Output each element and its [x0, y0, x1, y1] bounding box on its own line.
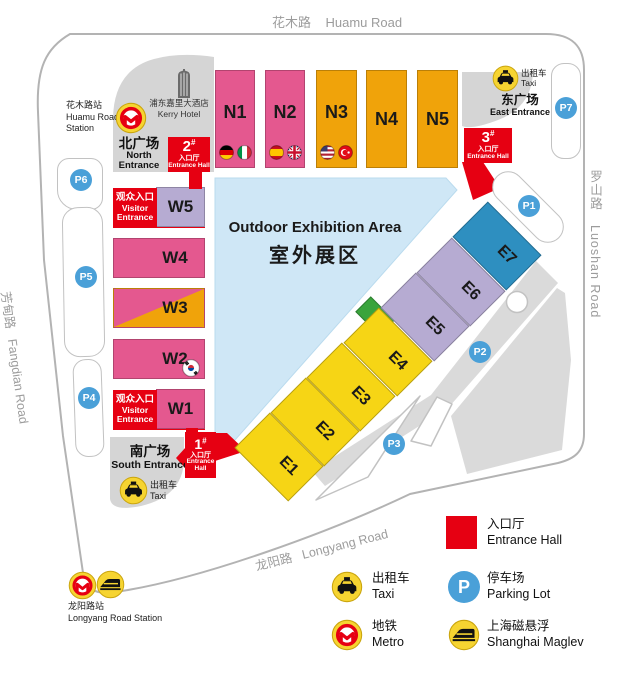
huamu-road-cn: 花木路: [272, 15, 311, 30]
huamu-road-label: 花木路 Huamu Road: [272, 12, 402, 31]
hall-n1-flags: [216, 145, 254, 160]
taxi-icon: [331, 571, 363, 603]
hall-n5-label: N5: [426, 109, 449, 130]
parking-p5: P5: [75, 266, 97, 288]
hall-n1-label: N1: [223, 102, 246, 123]
legend-metro-cn: 地铁: [372, 619, 404, 635]
hall-w1: W1: [156, 389, 205, 429]
north-entrance-cn: 北广场: [106, 137, 172, 151]
fangdian-road-cn: 芳甸路: [0, 291, 17, 330]
longyang-station-en: Longyang Road Station: [68, 613, 162, 625]
entrance-hall-3-num: 3: [482, 129, 490, 146]
legend-entrance-hall-cn: 入口厅: [487, 517, 562, 533]
east-entrance-cn: 东广场: [479, 94, 561, 108]
taxi-en: Taxi: [150, 491, 177, 502]
legend-taxi-cn: 出租车: [372, 571, 410, 587]
hall-e6-label: E6: [457, 278, 484, 305]
flag-spain-icon: [269, 145, 284, 160]
hall-e5-label: E5: [421, 313, 448, 340]
hall-n3-label: N3: [325, 102, 348, 123]
south-entrance-label: 南广场 South Entrance: [105, 445, 195, 471]
metro-icon: [331, 619, 363, 651]
hall-n4-label: N4: [375, 109, 398, 130]
south-entrance-cn: 南广场: [105, 445, 195, 460]
metro-icon: [68, 571, 97, 600]
legend-entrance-hall-label: 入口厅 Entrance Hall: [487, 517, 562, 548]
hall-n4: N4: [366, 70, 407, 168]
hall-n3-flags: [317, 145, 356, 160]
parking-p1: P1: [518, 195, 540, 217]
taxi-icon: [492, 65, 519, 92]
hall-n5: N5: [417, 70, 458, 168]
hall-w5-label: W5: [168, 197, 194, 217]
huamu-station-label: 花木路站 Huamu Road Station: [66, 100, 119, 135]
hall-w4: W4: [113, 238, 205, 278]
hall-n2-flags: [266, 145, 304, 160]
north-entrance-label: 北广场 North Entrance: [106, 137, 172, 171]
longyang-station-cn: 龙阳路站: [68, 601, 162, 613]
parking-p3: P3: [383, 433, 405, 455]
legend-entrance-hall-en: Entrance Hall: [487, 533, 562, 549]
visitor-entrance-w5: 观众入口 Visitor Entrance: [113, 188, 157, 228]
taxi-en: Taxi: [521, 78, 547, 88]
entrance-hall-2-en: Entrance Hall: [168, 163, 210, 170]
entrance-hall-2-stem: [189, 171, 202, 189]
hall-n1: N1: [215, 70, 255, 168]
entrance-hall-1-num: 1: [194, 436, 202, 452]
hall-w5: W5: [156, 187, 205, 227]
hall-e4-label: E4: [384, 348, 411, 375]
hall-e3-label: E3: [347, 383, 374, 410]
taxi-cn: 出租车: [521, 68, 547, 78]
metro-icon: [115, 102, 147, 134]
entrance-hall-1-en2: Hall: [195, 466, 207, 473]
huamu-station-en2: Station: [66, 123, 119, 135]
legend-parking-cn: 停车场: [487, 571, 550, 587]
parking-p2: P2: [469, 341, 491, 363]
entrance-hall-1: 1# 入口厅 Entrance Hall: [185, 432, 216, 478]
flag-italy-icon: [237, 145, 252, 160]
legend-maglev-en: Shanghai Maglev: [487, 635, 584, 651]
legend-parking-label: 停车场 Parking Lot: [487, 571, 550, 602]
huamu-station-en1: Huamu Road: [66, 112, 119, 124]
legend-parking-en: Parking Lot: [487, 587, 550, 603]
legend-maglev-cn: 上海磁悬浮: [487, 619, 584, 635]
flag-germany-icon: [219, 145, 234, 160]
north-entrance-en2: Entrance: [106, 161, 172, 171]
flag-korea-icon: [182, 359, 200, 377]
entrance-hall-2-num: 2: [183, 138, 191, 155]
outdoor-area-title-en: Outdoor Exhibition Area: [215, 219, 415, 236]
flag-uk-icon: [287, 145, 302, 160]
hotel-label: 浦东嘉里大酒店 Kerry Hotel: [140, 98, 218, 119]
taxi-icon: [119, 476, 148, 505]
visitor-entrance-en2: Entrance: [117, 213, 153, 223]
road-junction-circle: [507, 292, 528, 313]
hall-e1-label: E1: [275, 453, 302, 480]
outdoor-area-title-cn: 室外展区: [215, 239, 415, 268]
hash-mark: #: [490, 129, 494, 138]
hall-n2: N2: [265, 70, 305, 168]
taxi-cn: 出租车: [150, 480, 177, 491]
legend-maglev-label: 上海磁悬浮 Shanghai Maglev: [487, 619, 584, 650]
hall-w3-label: W3: [114, 298, 204, 318]
maglev-icon: [448, 619, 480, 651]
east-entrance-en: East Entrance: [479, 108, 561, 118]
hall-w2: W2: [113, 339, 205, 379]
hall-e2-label: E2: [311, 418, 338, 445]
parking-p6: P6: [70, 169, 92, 191]
hash-mark: #: [191, 138, 195, 147]
hall-n3: N3: [316, 70, 357, 168]
longyang-station-label: 龙阳路站 Longyang Road Station: [68, 601, 162, 624]
hall-w4-label: W4: [114, 248, 204, 268]
south-taxi-label: 出租车 Taxi: [150, 480, 177, 502]
huamu-station-cn: 花木路站: [66, 100, 119, 112]
visitor-entrance-w1: 观众入口 Visitor Entrance: [113, 390, 157, 430]
huamu-road-en: Huamu Road: [325, 15, 402, 30]
maglev-icon: [96, 570, 125, 599]
luoshan-road-en: Luoshan Road: [588, 225, 602, 318]
legend-entrance-hall-swatch: [446, 516, 477, 549]
hall-w1-label: W1: [168, 399, 194, 419]
hotel-building-icon: [174, 69, 194, 98]
east-taxi-label: 出租车 Taxi: [521, 68, 547, 88]
hotel-name-en: Kerry Hotel: [140, 109, 218, 120]
east-entrance-label: 东广场 East Entrance: [479, 94, 561, 118]
visitor-entrance-en2: Entrance: [117, 415, 153, 425]
flag-usa-icon: [320, 145, 335, 160]
entrance-hall-3: 3# 入口厅 Entrance Hall: [464, 128, 512, 163]
entrance-hall-2: 2# 入口厅 Entrance Hall: [168, 137, 210, 172]
hall-e7-label: E7: [493, 242, 520, 269]
luoshan-road-label: 罗山路 Luoshan Road: [586, 170, 605, 318]
legend-taxi-en: Taxi: [372, 587, 410, 603]
hotel-name-cn: 浦东嘉里大酒店: [140, 98, 218, 109]
hall-n2-label: N2: [273, 102, 296, 123]
parking-p4: P4: [78, 387, 100, 409]
luoshan-road-cn: 罗山路: [588, 170, 602, 211]
legend-taxi-label: 出租车 Taxi: [372, 571, 410, 602]
hash-mark: #: [202, 436, 206, 445]
hall-w3: W3: [113, 288, 205, 328]
legend-metro-en: Metro: [372, 635, 404, 651]
parking-icon: P: [448, 571, 480, 603]
legend-metro-label: 地铁 Metro: [372, 619, 404, 650]
parking-p7: P7: [555, 97, 577, 119]
south-entrance-en: South Entrance: [105, 460, 195, 472]
entrance-hall-3-en: Entrance Hall: [467, 154, 509, 161]
flag-turkey-icon: [338, 145, 353, 160]
